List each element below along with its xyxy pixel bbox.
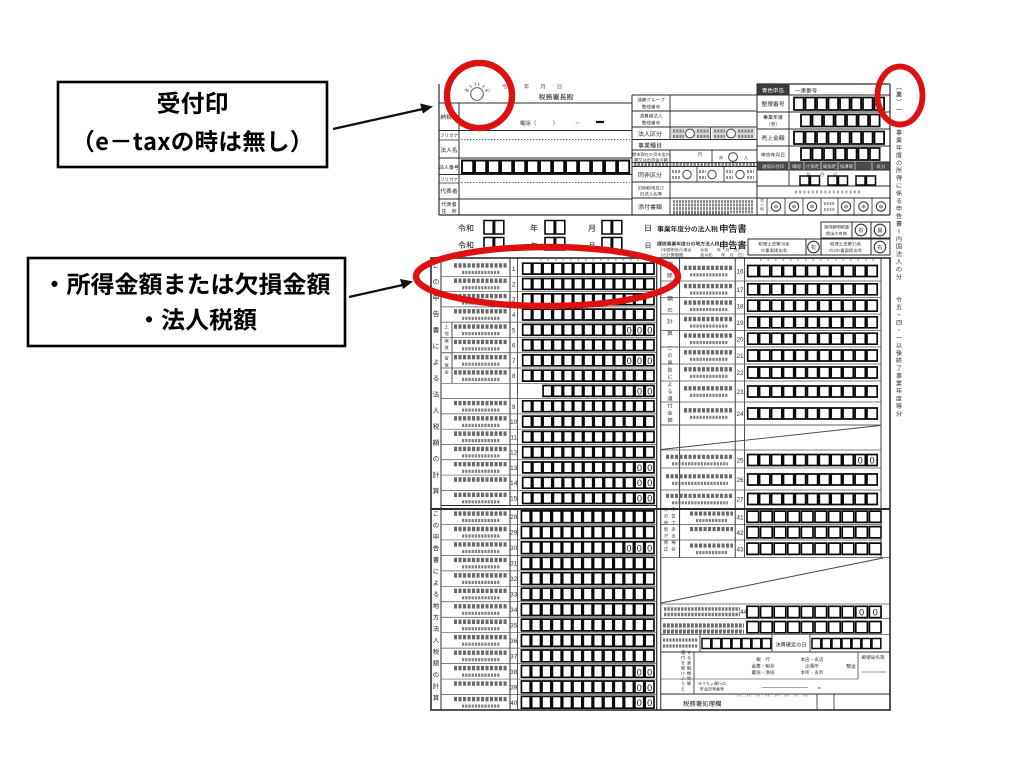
svg-text:25: 25 [736, 458, 744, 465]
svg-text:20: 20 [736, 336, 744, 343]
svg-text:6: 6 [512, 343, 516, 350]
svg-text:35: 35 [510, 622, 518, 629]
svg-text:0: 0 [627, 325, 632, 335]
svg-text:0: 0 [637, 493, 642, 503]
svg-text:0: 0 [647, 356, 652, 366]
svg-text:4: 4 [512, 312, 516, 319]
svg-text:1: 1 [512, 266, 516, 273]
svg-text:0: 0 [873, 608, 878, 618]
svg-text:30: 30 [510, 545, 518, 552]
svg-text:31: 31 [510, 561, 518, 568]
svg-text:34: 34 [510, 607, 518, 614]
svg-text:0: 0 [647, 544, 652, 554]
svg-text:9: 9 [512, 404, 516, 411]
svg-text:11: 11 [510, 434, 517, 441]
svg-text:0: 0 [637, 667, 642, 677]
svg-text:18: 18 [736, 303, 744, 310]
svg-text:8: 8 [512, 373, 516, 380]
svg-text:42: 42 [736, 530, 744, 537]
svg-text:27: 27 [736, 497, 744, 504]
svg-text:0: 0 [637, 463, 642, 473]
svg-text:0: 0 [647, 683, 652, 693]
svg-text:29: 29 [510, 530, 518, 537]
svg-text:0: 0 [647, 478, 652, 488]
svg-text:0: 0 [859, 608, 864, 618]
svg-text:0: 0 [637, 325, 642, 335]
svg-text:32: 32 [510, 576, 518, 583]
svg-text:0: 0 [627, 356, 632, 366]
svg-text:43: 43 [736, 546, 744, 553]
svg-text:0: 0 [647, 325, 652, 335]
svg-text:2: 2 [512, 281, 516, 288]
svg-text:36: 36 [510, 638, 518, 645]
svg-text:0: 0 [637, 683, 642, 693]
svg-text:41: 41 [736, 514, 744, 521]
svg-text:0: 0 [637, 698, 642, 708]
svg-text:15: 15 [510, 495, 518, 502]
svg-text:13: 13 [510, 465, 518, 472]
svg-text:5: 5 [512, 327, 516, 334]
svg-text:28: 28 [510, 514, 518, 521]
svg-text:21: 21 [736, 353, 744, 360]
svg-text:0: 0 [647, 463, 652, 473]
svg-text:0: 0 [870, 456, 875, 466]
svg-text:0: 0 [637, 478, 642, 488]
svg-text:33: 33 [510, 592, 518, 599]
svg-text:0: 0 [647, 667, 652, 677]
svg-text:0: 0 [647, 698, 652, 708]
svg-text:23: 23 [736, 389, 744, 396]
svg-text:0: 0 [647, 386, 652, 396]
svg-text:7: 7 [512, 358, 516, 365]
svg-text:19: 19 [736, 320, 744, 327]
svg-text:0: 0 [637, 544, 642, 554]
svg-text:17: 17 [736, 287, 744, 294]
svg-text:24: 24 [736, 411, 744, 418]
svg-text:0: 0 [637, 356, 642, 366]
svg-text:14: 14 [510, 480, 518, 487]
svg-text:10: 10 [510, 419, 518, 426]
svg-text:12: 12 [510, 450, 518, 457]
svg-text:37: 37 [510, 653, 518, 660]
svg-text:40: 40 [510, 700, 518, 707]
svg-text:39: 39 [510, 684, 518, 691]
svg-text:16: 16 [736, 269, 744, 276]
svg-text:22: 22 [736, 370, 744, 377]
svg-text:26: 26 [736, 477, 744, 484]
svg-text:0: 0 [647, 493, 652, 503]
svg-text:0: 0 [637, 386, 642, 396]
svg-text:38: 38 [510, 669, 518, 676]
svg-text:-: - [818, 683, 821, 692]
svg-text:0: 0 [858, 456, 863, 466]
svg-text:0: 0 [626, 544, 631, 554]
